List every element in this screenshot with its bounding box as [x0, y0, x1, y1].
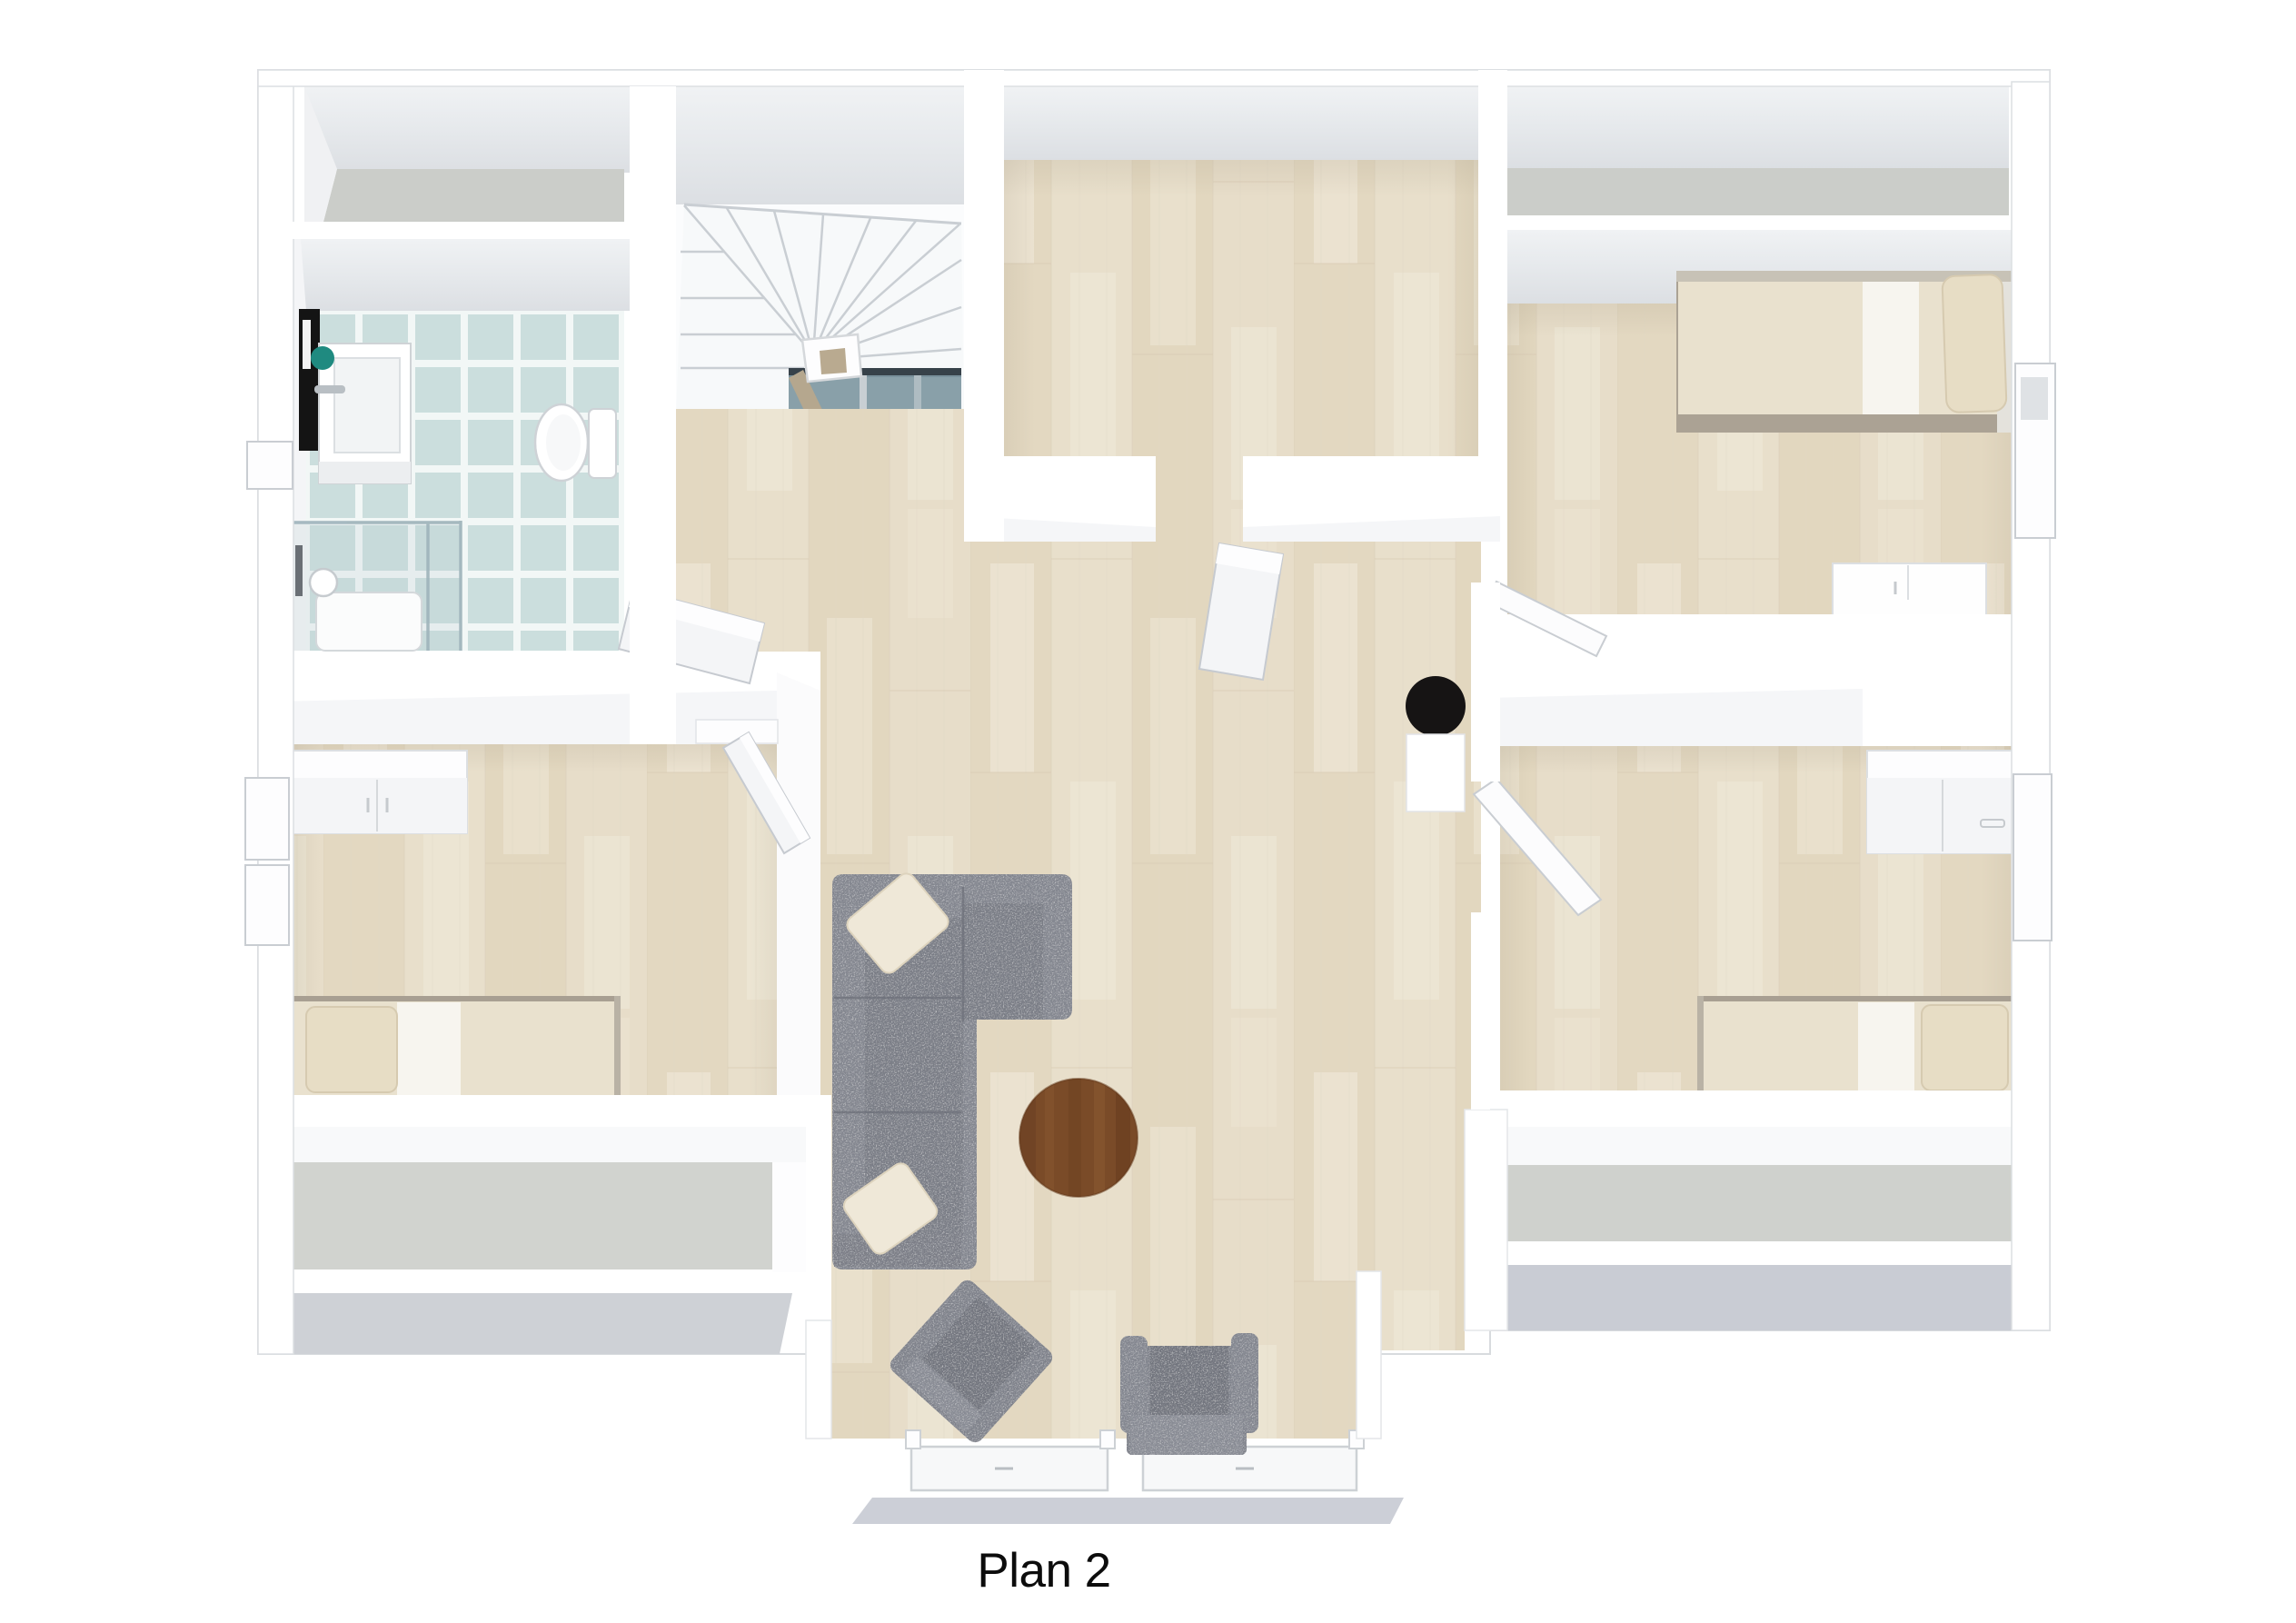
svg-text:Plan 2: Plan 2: [977, 1544, 1110, 1598]
